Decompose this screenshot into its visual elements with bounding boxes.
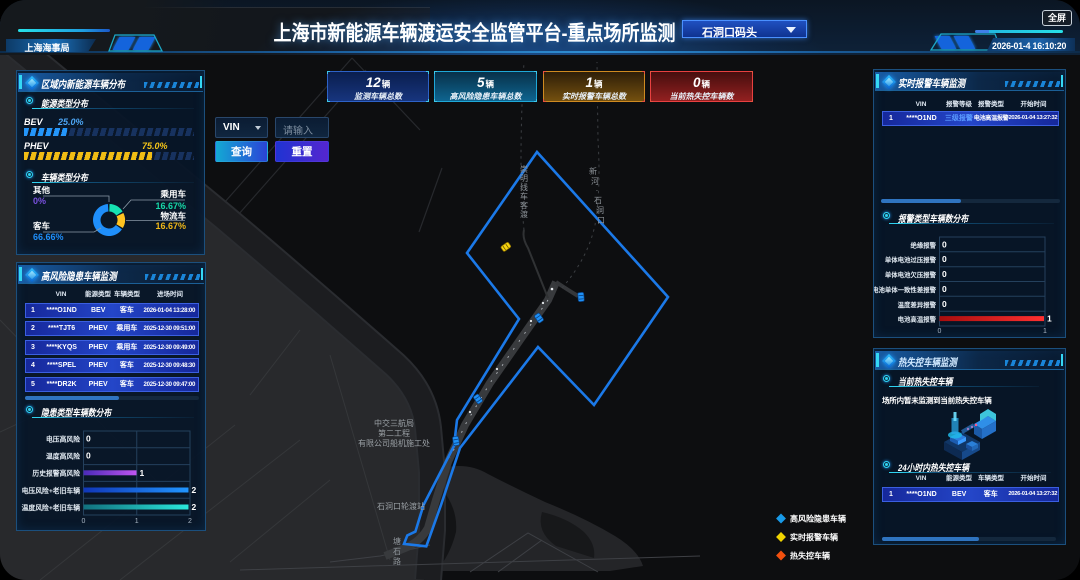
svg-text:单体电池过压报警: 单体电池过压报警 — [885, 255, 937, 264]
svg-text:0: 0 — [82, 518, 86, 525]
svg-text:乘用车: 乘用车 — [159, 189, 186, 199]
svg-text:绝缘报警: 绝缘报警 — [910, 240, 936, 249]
svg-text:电池单体一致性差报警: 电池单体一致性差报警 — [874, 285, 937, 294]
svg-text:客车: 客车 — [32, 221, 51, 231]
svg-text:0: 0 — [86, 451, 91, 461]
svg-text:0: 0 — [86, 434, 91, 444]
svg-text:16.67%: 16.67% — [155, 201, 186, 211]
svg-text:实时报警车辆: 实时报警车辆 — [790, 532, 838, 542]
svg-text:电压高风险: 电压高风险 — [46, 434, 80, 443]
svg-text:崇明线车客渡: 崇明线车客渡 — [520, 165, 528, 219]
svg-text:2: 2 — [192, 502, 197, 512]
svg-text:塘石路: 塘石路 — [393, 536, 401, 566]
svg-text:1: 1 — [1043, 328, 1047, 335]
svg-text:2: 2 — [192, 485, 197, 495]
svg-text:0: 0 — [942, 239, 947, 249]
svg-text:1: 1 — [1047, 314, 1052, 324]
svg-text:石洞口轮渡站: 石洞口轮渡站 — [377, 501, 425, 511]
svg-text:0: 0 — [938, 328, 942, 335]
svg-text:0: 0 — [942, 254, 947, 264]
svg-text:温度风险+老旧车辆: 温度风险+老旧车辆 — [22, 503, 81, 512]
svg-text:0: 0 — [942, 269, 947, 279]
svg-text:有限公司船机施工处: 有限公司船机施工处 — [358, 438, 430, 448]
svg-text:0: 0 — [942, 284, 947, 294]
svg-text:热失控车辆: 热失控车辆 — [790, 551, 830, 561]
svg-text:高风险隐患车辆: 高风险隐患车辆 — [790, 514, 846, 524]
svg-text:1: 1 — [135, 518, 139, 525]
svg-text:其他: 其他 — [33, 186, 51, 195]
svg-text:16.67%: 16.67% — [155, 221, 186, 231]
svg-text:1: 1 — [140, 468, 145, 478]
svg-text:0%: 0% — [33, 196, 46, 206]
svg-text:物流车: 物流车 — [160, 211, 186, 221]
svg-text:单体电池欠压报警: 单体电池欠压报警 — [885, 270, 937, 279]
svg-text:温度高风险: 温度高风险 — [46, 451, 80, 460]
svg-text:温度差异报警: 温度差异报警 — [898, 300, 937, 309]
svg-text:第二工程: 第二工程 — [378, 428, 410, 438]
svg-text:中交三航局: 中交三航局 — [374, 418, 414, 428]
svg-text:66.66%: 66.66% — [33, 232, 64, 242]
svg-text:电压风险+老旧车辆: 电压风险+老旧车辆 — [22, 486, 81, 495]
svg-text:0: 0 — [942, 299, 947, 309]
svg-text:2: 2 — [188, 518, 192, 525]
svg-text:历史报警高风险: 历史报警高风险 — [32, 469, 80, 478]
svg-text:电池高温报警: 电池高温报警 — [898, 315, 937, 324]
